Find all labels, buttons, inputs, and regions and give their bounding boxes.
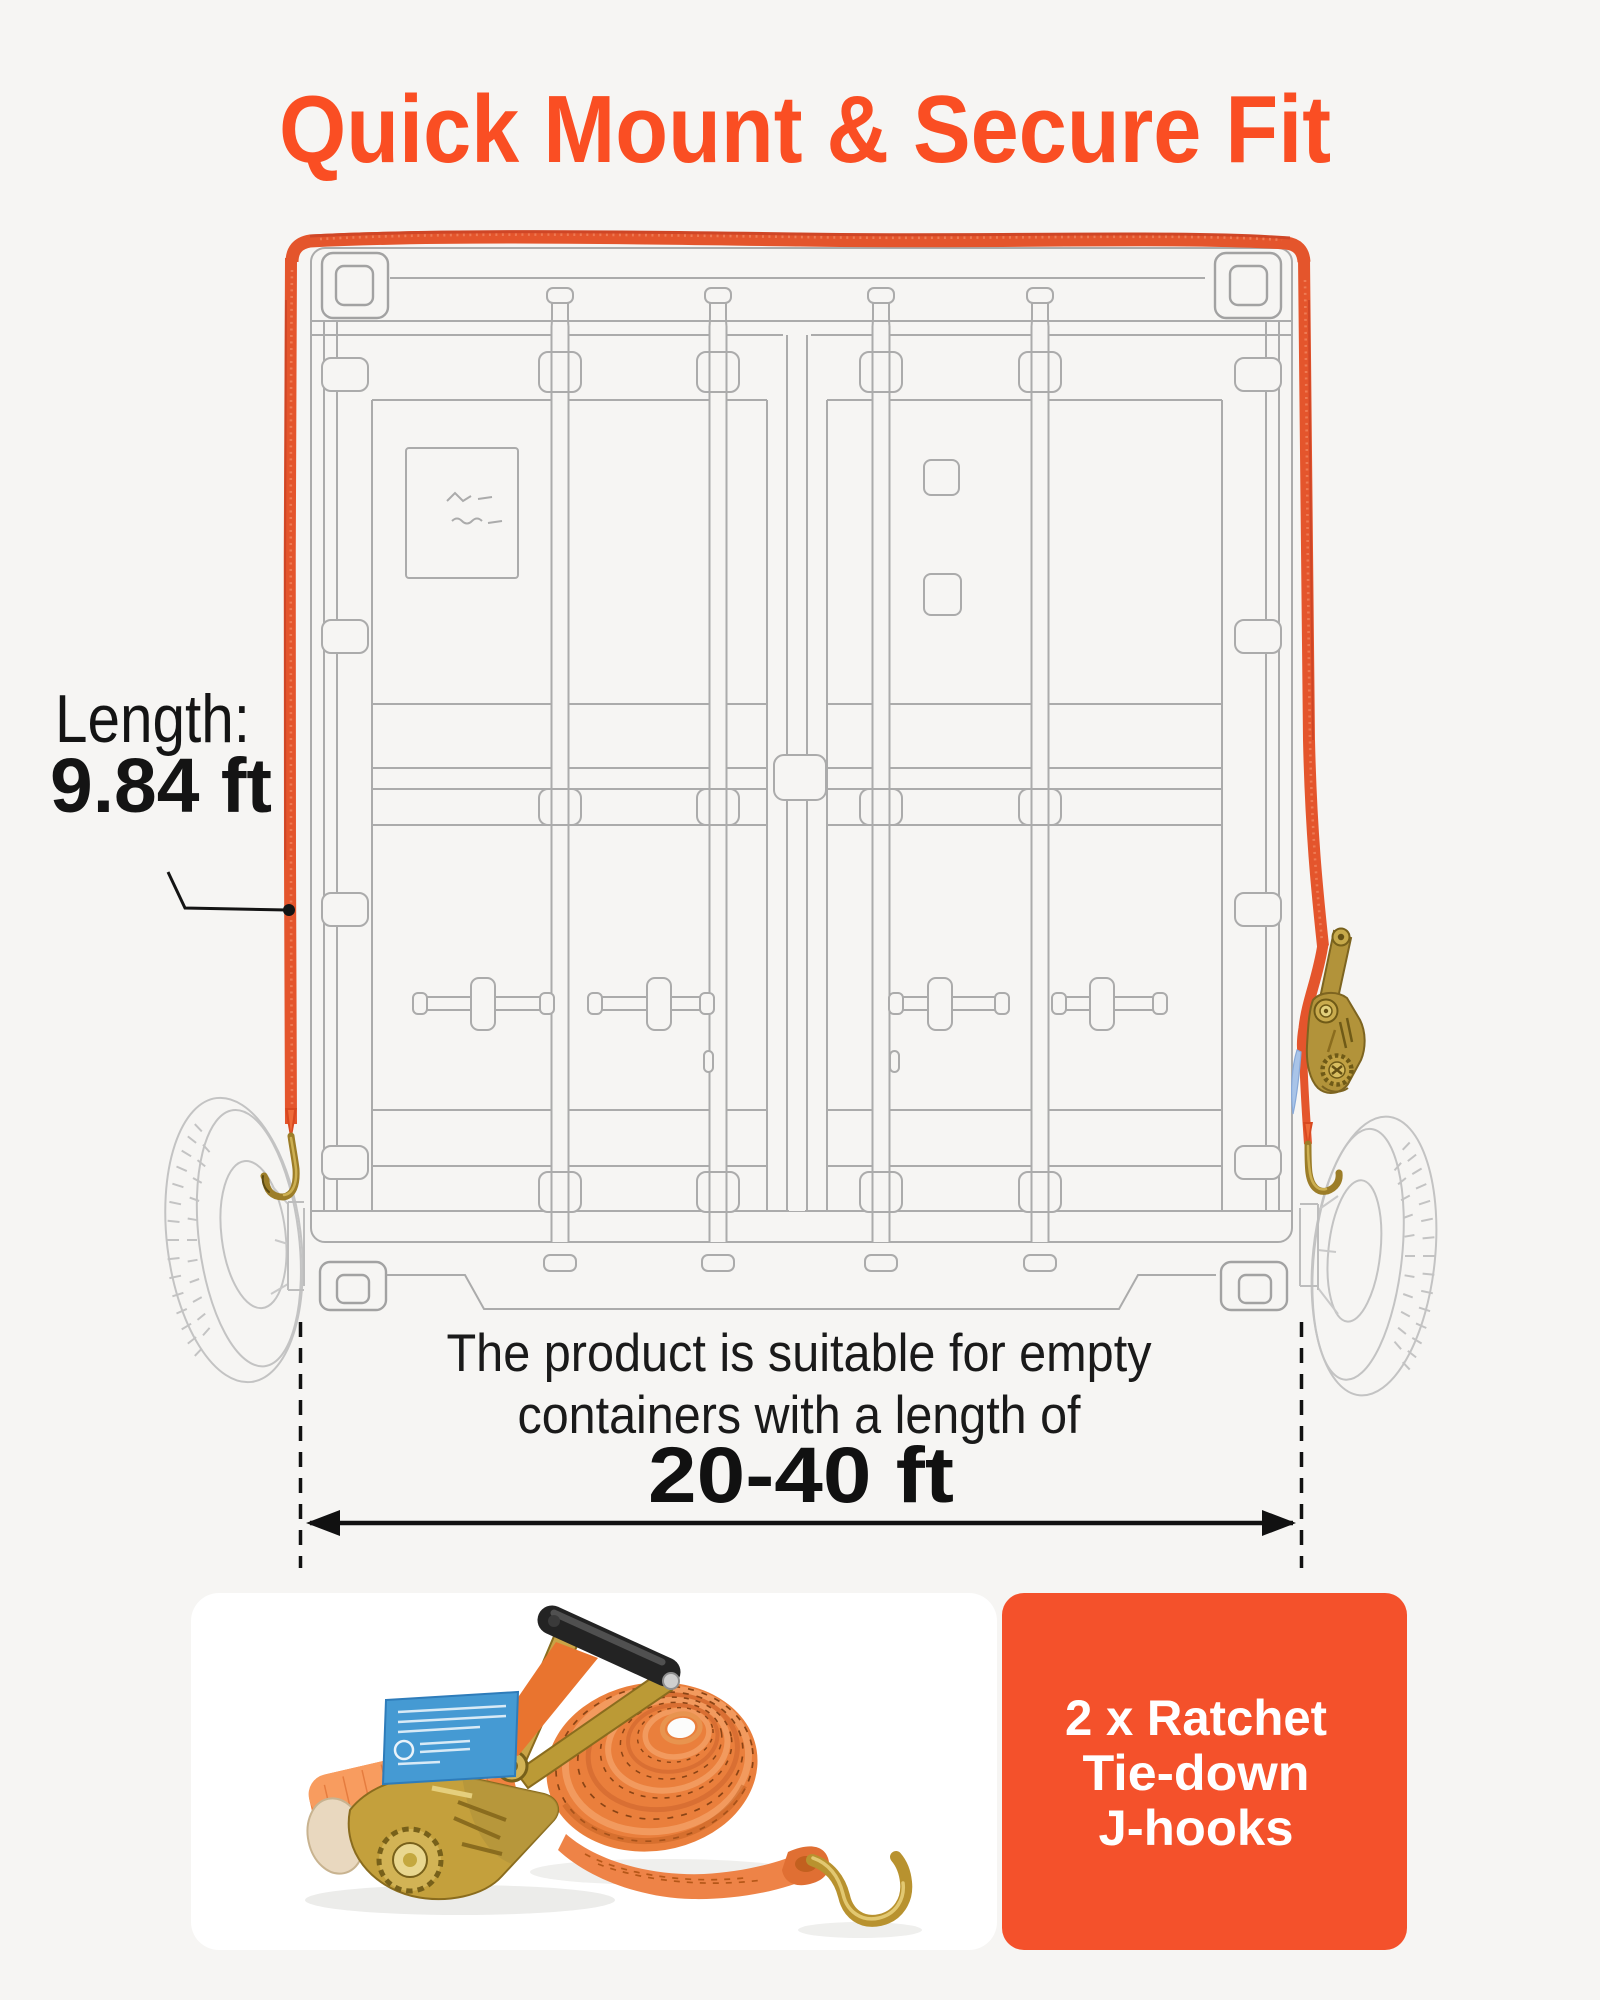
svg-text:Tie-down: Tie-down — [1083, 1745, 1310, 1801]
svg-text:Quick Mount & Secure Fit: Quick Mount & Secure Fit — [279, 76, 1331, 183]
svg-text:The product is suitable for em: The product is suitable for empty — [447, 1324, 1152, 1383]
svg-text:J-hooks: J-hooks — [1099, 1800, 1294, 1856]
svg-text:2 x Ratchet: 2 x Ratchet — [1065, 1690, 1327, 1746]
svg-text:9.84 ft: 9.84 ft — [50, 743, 272, 829]
svg-text:20-40 ft: 20-40 ft — [648, 1430, 954, 1519]
